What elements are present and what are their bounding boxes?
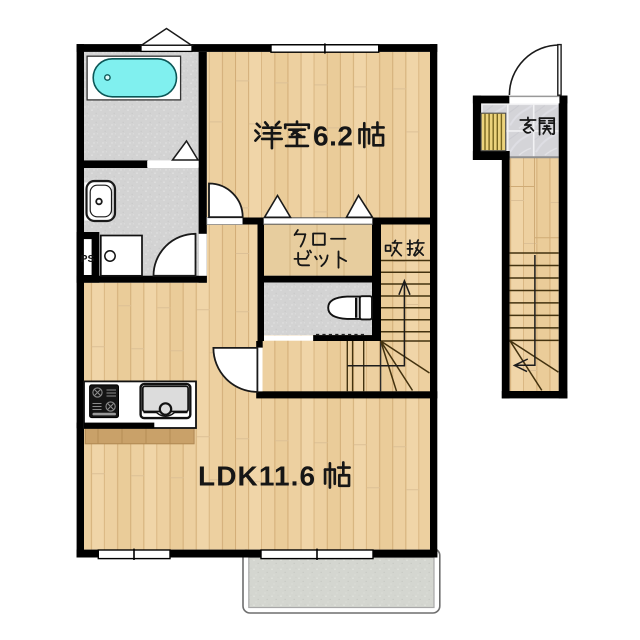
svg-text:PS: PS (81, 253, 95, 265)
svg-text:LDK11.6: LDK11.6 (198, 461, 316, 492)
svg-text:6.2: 6.2 (313, 121, 353, 152)
